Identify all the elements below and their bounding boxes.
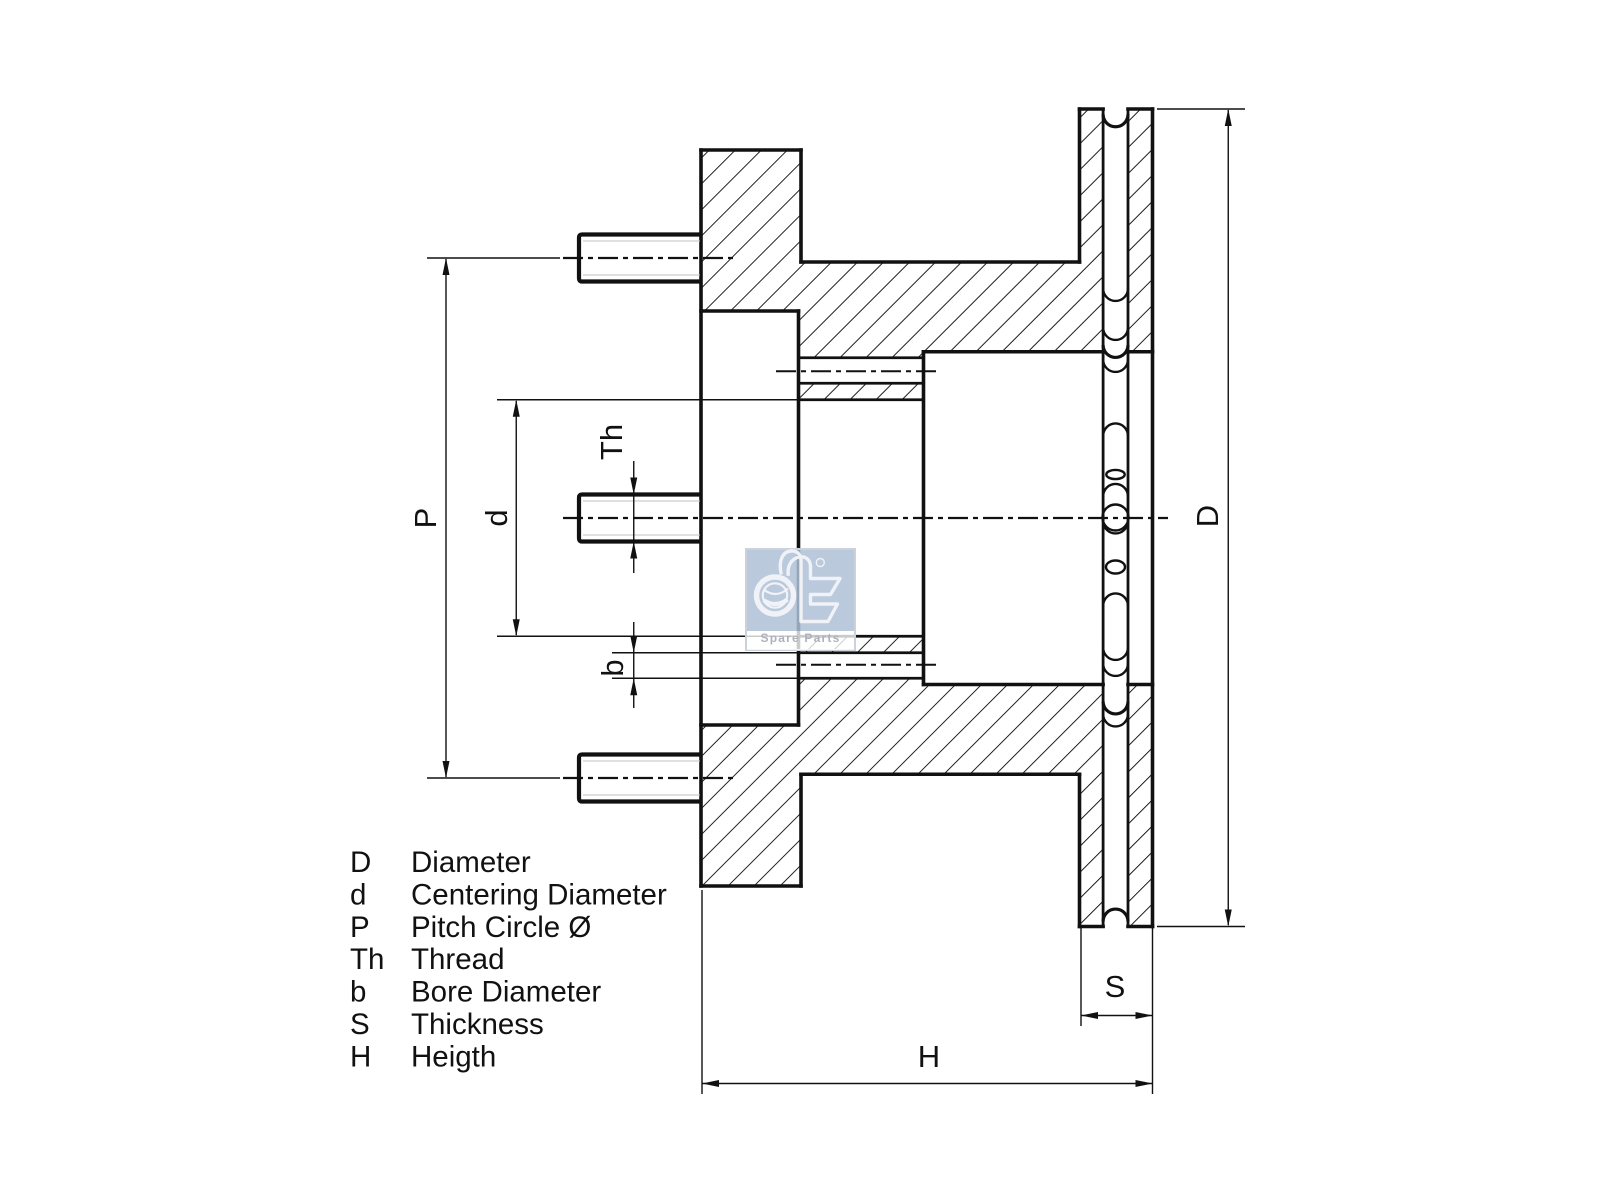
svg-text:Thickness: Thickness xyxy=(411,1008,544,1041)
svg-text:Centering Diameter: Centering Diameter xyxy=(411,878,667,911)
svg-text:S: S xyxy=(1105,969,1126,1004)
svg-text:Bore Diameter: Bore Diameter xyxy=(411,976,601,1009)
svg-text:Thread: Thread xyxy=(411,943,504,976)
svg-text:S: S xyxy=(350,1008,370,1041)
svg-text:P: P xyxy=(350,911,370,944)
svg-text:Spare Parts: Spare Parts xyxy=(761,631,841,645)
svg-text:Th: Th xyxy=(594,424,629,460)
svg-text:b: b xyxy=(595,659,630,676)
svg-text:D: D xyxy=(350,846,371,879)
svg-text:Heigth: Heigth xyxy=(411,1040,496,1073)
svg-text:P: P xyxy=(408,508,443,529)
svg-text:Pitch Circle Ø: Pitch Circle Ø xyxy=(411,911,591,944)
svg-text:D: D xyxy=(1190,505,1225,527)
svg-text:H: H xyxy=(918,1039,940,1074)
svg-text:d: d xyxy=(350,878,366,911)
svg-text:H: H xyxy=(350,1040,371,1073)
svg-text:d: d xyxy=(479,509,514,526)
svg-text:b: b xyxy=(350,976,366,1009)
svg-text:Diameter: Diameter xyxy=(411,846,531,879)
svg-text:Th: Th xyxy=(350,943,384,976)
